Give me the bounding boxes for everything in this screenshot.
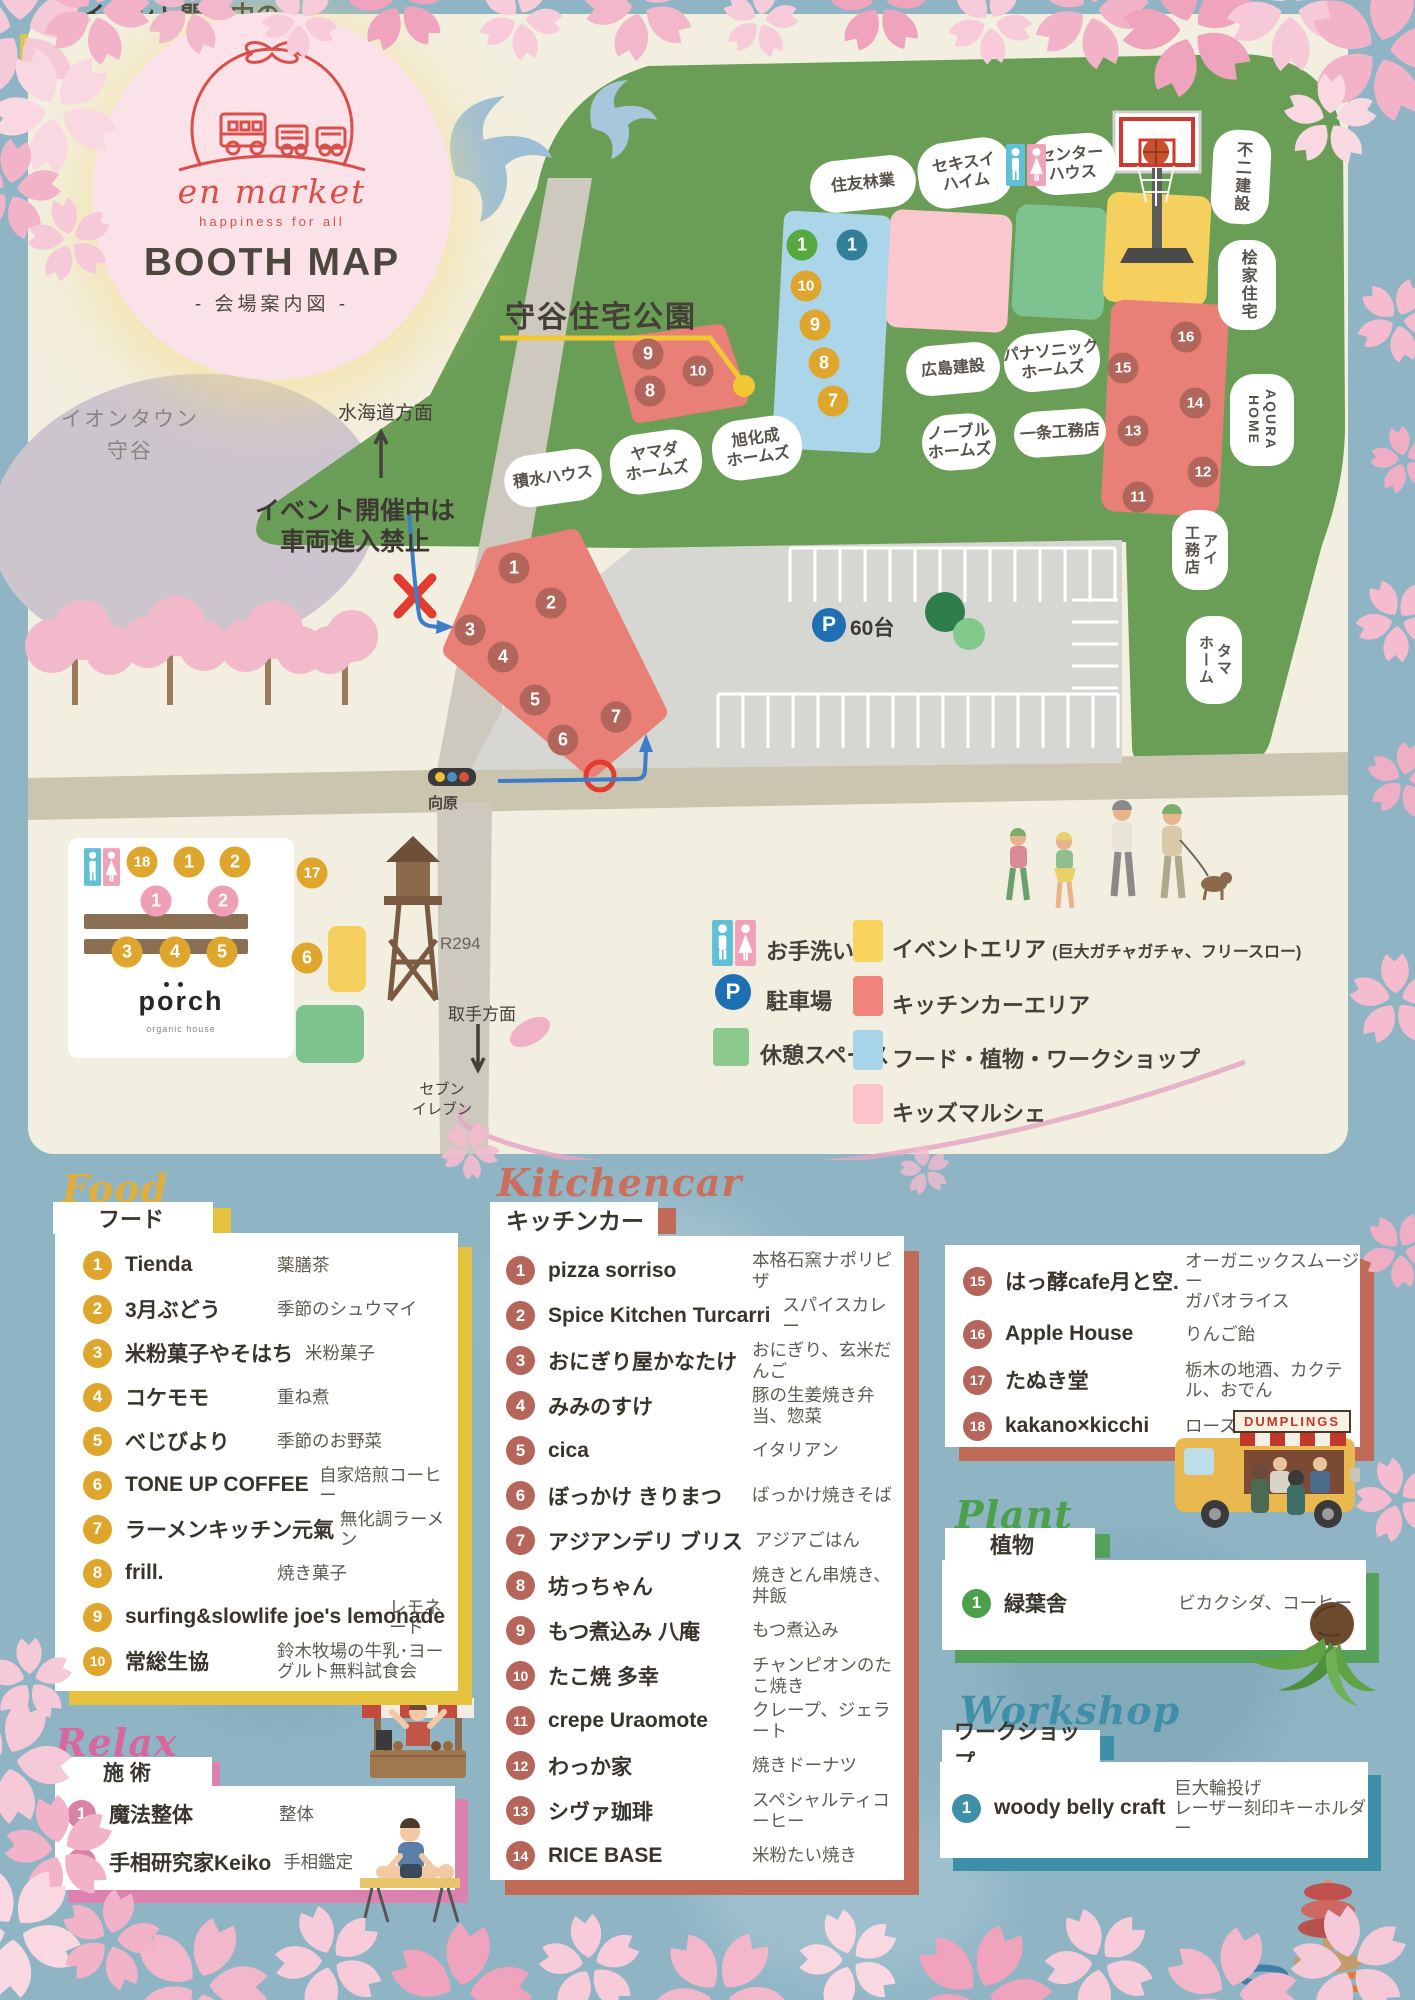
booth-number: 2 <box>506 1301 535 1330</box>
booth-description: 無化調ラーメン <box>340 1509 458 1549</box>
booth-row: 9 surfing&slowlife joe's lemonade レモネード <box>55 1595 458 1639</box>
map-booth-marker-red-5: 5 <box>520 685 551 716</box>
map-booth-marker-red-3: 3 <box>455 615 486 646</box>
booth-number: 1 <box>962 1589 991 1618</box>
booth-name: 常総生協 <box>125 1646 265 1676</box>
map-booth-marker-red-6: 6 <box>548 725 579 756</box>
map-booth-marker-red-15: 15 <box>1108 353 1139 384</box>
bubble-tama-home: タマ ホーム <box>1186 616 1242 704</box>
booth-number: 13 <box>506 1796 535 1825</box>
ring-toss-illustration <box>1225 1862 1370 1992</box>
booth-name: frill. <box>125 1561 265 1585</box>
booth-description: もつ煮込み <box>752 1620 839 1640</box>
booth-number: 1 <box>83 1251 112 1280</box>
map-booth-marker-yellow-1: 1 <box>174 847 205 878</box>
booth-name: わっか家 <box>548 1751 740 1781</box>
booth-name: たぬき堂 <box>1005 1365 1173 1395</box>
legend-event-note: (巨大ガチャガチャ、フリースロー) <box>1052 944 1301 961</box>
bubble-fuji-kensetsu: 不二建設 <box>1210 129 1273 226</box>
booth-number: 6 <box>83 1471 112 1500</box>
booth-description: おにぎり、玄米だんご <box>752 1340 904 1380</box>
booth-number: 10 <box>83 1647 112 1676</box>
map-booth-marker-yellow-5: 5 <box>207 937 238 968</box>
booth-number: 18 <box>963 1412 992 1441</box>
booth-name: 手相研究家Keiko <box>109 1847 271 1877</box>
booth-description: ばっかけ焼きそば <box>752 1485 892 1505</box>
booth-number: 1 <box>67 1800 96 1829</box>
map-booth-marker-teal-1: 1 <box>837 230 868 261</box>
map-booth-marker-red-7: 7 <box>601 702 632 733</box>
food-booth-list: 1 Tienda 薬膳茶 2 3月ぶどう 季節のシュウマイ 3 米粉菓子やそはち… <box>55 1233 458 1691</box>
booth-number: 12 <box>506 1751 535 1780</box>
kitchencar-script-heading: Kitchencar <box>497 1160 742 1205</box>
direction-north-label: 水海道方面 <box>338 398 433 425</box>
direction-south-label: 取手方面 <box>448 1000 516 1025</box>
booth-row: 6 ぼっかけ きりまつ ばっかけ焼きそば <box>490 1473 904 1518</box>
booth-number: 3 <box>506 1346 535 1375</box>
booth-number: 6 <box>506 1481 535 1510</box>
map-booth-marker-red-2: 2 <box>536 588 567 619</box>
porch-logo-sub: organic house <box>68 1024 294 1034</box>
parking-capacity: 60台 <box>850 612 894 642</box>
truck-sign: DUMPLINGS <box>1233 1410 1351 1433</box>
map-booth-marker-yellow-17: 17 <box>297 858 328 889</box>
booth-description: 整体 <box>279 1804 314 1824</box>
booth-number: 5 <box>83 1427 112 1456</box>
plant-section-title: 植物 <box>945 1528 1095 1560</box>
booth-number: 3 <box>83 1339 112 1368</box>
zone-event-small <box>328 926 366 992</box>
booth-name: Spice Kitchen Turcarri <box>548 1304 770 1328</box>
booth-description: 焼きドーナツ <box>752 1755 857 1775</box>
legend-event-swatch <box>853 920 883 962</box>
booth-description: 焼き菓子 <box>277 1563 347 1583</box>
bubble-aqura-home: AQURA HOME <box>1230 374 1294 466</box>
booth-description: アジアごはん <box>755 1530 860 1550</box>
booth-description: 季節のシュウマイ <box>277 1299 417 1319</box>
booth-name: ラーメンキッチン元氣 <box>125 1514 328 1544</box>
toilet-icon <box>712 920 756 966</box>
park-label-dot <box>733 375 755 397</box>
kitchencar-section-title: キッチンカー <box>490 1202 658 1236</box>
bubble-ai-koumuten: アイ 工務店 <box>1172 510 1228 590</box>
map-booth-marker-pink-1: 1 <box>141 886 172 917</box>
legend-kids-label: キッズマルシェ <box>892 1096 1046 1128</box>
relax-section-title: 施 術 <box>55 1757 212 1787</box>
booth-row: 17 たぬき堂 栃木の地酒、カクテル、おでん <box>945 1357 1360 1403</box>
booth-name: cica <box>548 1439 740 1463</box>
booth-name: おにぎり屋かなたけ <box>548 1346 740 1376</box>
page-title: BOOTH MAP <box>144 241 400 285</box>
map-booth-marker-red-4: 4 <box>488 642 519 673</box>
booth-row: 1 pizza sorriso 本格石窯ナポリピザ <box>490 1248 904 1293</box>
booth-name: Apple House <box>1005 1322 1173 1346</box>
booth-number: 1 <box>952 1794 981 1823</box>
booth-name: はっ酵cafe月と空. <box>1005 1266 1173 1296</box>
booth-name: kakano×kicchi <box>1005 1414 1173 1438</box>
booth-number: 5 <box>506 1436 535 1465</box>
booth-row: 7 アジアンデリ ブリス アジアごはん <box>490 1518 904 1563</box>
booth-name: Tienda <box>125 1253 265 1277</box>
booth-name: TONE UP COFFEE <box>125 1473 307 1497</box>
booth-number: 4 <box>506 1391 535 1420</box>
booth-row: 1 Tienda 薬膳茶 <box>55 1243 458 1287</box>
booth-row: 5 cica イタリアン <box>490 1428 904 1473</box>
legend-event-text: イベントエリア <box>892 937 1046 962</box>
booth-number: 17 <box>963 1366 992 1395</box>
booth-description: 手相鑑定 <box>283 1852 353 1872</box>
legend-kitchencar-label: キッチンカーエリア <box>892 988 1090 1020</box>
event-logo: en market happiness for all BOOTH MAP - … <box>92 12 452 380</box>
booth-row: 8 坊っちゃん 焼きとん串焼き、丼飯 <box>490 1563 904 1608</box>
booth-description: 焼きとん串焼き、丼飯 <box>752 1565 904 1605</box>
booth-row: 10 常総生協 鈴木牧場の牛乳･ヨーグルト無料試食会 <box>55 1639 458 1683</box>
booth-name: べじびより <box>125 1426 265 1456</box>
staghorn-fern-illustration <box>1240 1598 1380 1710</box>
legend-toilet-label: お手洗い <box>766 934 854 966</box>
porch-logo: porch <box>68 986 294 1017</box>
map-booth-marker-yellow-2: 2 <box>220 847 251 878</box>
booth-number: 7 <box>506 1526 535 1555</box>
booth-row: 1 woody belly craft 巨大輪投げ レーザー刻印キーホルダー <box>940 1768 1368 1848</box>
booth-number: 4 <box>83 1383 112 1412</box>
booth-description: 豚の生姜焼き弁当、惣菜 <box>752 1385 904 1425</box>
legend-parking-label: 駐車場 <box>766 984 832 1016</box>
bubble-hinokiya: 桧家住宅 <box>1218 240 1276 330</box>
people-illustration <box>1009 800 1232 908</box>
booth-row: 10 たこ焼 多幸 チャンピオンのたこ焼き <box>490 1653 904 1698</box>
booth-description: イタリアン <box>752 1440 839 1460</box>
route-label: R294 <box>440 934 481 954</box>
workshop-section-title: ワークショップ <box>942 1730 1100 1762</box>
booth-map-flyer: en market happiness for all BOOTH MAP - … <box>0 0 1415 2000</box>
legend-rest-swatch <box>713 1028 749 1066</box>
booth-number: 7 <box>83 1515 112 1544</box>
booth-number: 16 <box>963 1320 992 1349</box>
map-legend: お手洗い P 駐車場 休憩スペース イベントエリア (巨大ガチャガチャ、フリース… <box>700 912 1400 1147</box>
zone-kids-pink <box>885 209 1013 333</box>
booth-name: pizza sorriso <box>548 1259 740 1283</box>
map-booth-marker-red-1: 1 <box>499 553 530 584</box>
massage-illustration <box>348 1806 466 1928</box>
booth-number: 15 <box>963 1267 992 1296</box>
parking-icon: P <box>812 608 846 642</box>
booth-number: 2 <box>83 1295 112 1324</box>
map-booth-marker-yellow-4: 4 <box>160 937 191 968</box>
kitchencar-booth-list: 1 pizza sorriso 本格石窯ナポリピザ 2 Spice Kitche… <box>490 1236 904 1880</box>
booth-row: 6 TONE UP COFFEE 自家焙煎コーヒー <box>55 1463 458 1507</box>
aeon-town-label: イオンタウン 守谷 <box>50 404 210 467</box>
booth-name: woody belly craft <box>994 1796 1162 1820</box>
booth-row: 7 ラーメンキッチン元氣 無化調ラーメン <box>55 1507 458 1551</box>
map-booth-marker-red-11: 11 <box>1123 482 1154 513</box>
legend-kitchencar-swatch <box>853 976 883 1016</box>
booth-description: 巨大輪投げ レーザー刻印キーホルダー <box>1174 1778 1368 1838</box>
toilet-icon <box>1006 144 1046 186</box>
booth-row: 9 もつ煮込み 八庵 もつ煮込み <box>490 1608 904 1653</box>
booth-row: 2 3月ぶどう 季節のシュウマイ <box>55 1287 458 1331</box>
map-booth-marker-yellow-10: 10 <box>791 271 822 302</box>
legend-kids-swatch <box>853 1084 883 1124</box>
legend-event-label: イベントエリア (巨大ガチャガチャ、フリースロー) <box>892 932 1301 964</box>
map-booth-marker-red-14: 14 <box>1180 388 1211 419</box>
booth-number: 9 <box>506 1616 535 1645</box>
booth-row: 5 べじびより 季節のお野菜 <box>55 1419 458 1463</box>
booth-description: 鈴木牧場の牛乳･ヨーグルト無料試食会 <box>277 1641 458 1681</box>
booth-row: 8 frill. 焼き菓子 <box>55 1551 458 1595</box>
booth-description: 季節のお野菜 <box>277 1431 382 1451</box>
map-booth-marker-yellow-9: 9 <box>800 310 831 341</box>
booth-number: 8 <box>506 1571 535 1600</box>
booth-description: チャンピオンのたこ焼き <box>752 1655 904 1695</box>
booth-row: 4 コケモモ 重ね煮 <box>55 1375 458 1419</box>
traffic-light-icon <box>428 768 476 786</box>
booth-number: 11 <box>506 1706 535 1735</box>
booth-number: 8 <box>83 1559 112 1588</box>
booth-description: スペシャルティコーヒー <box>752 1790 904 1830</box>
booth-name: コケモモ <box>125 1382 265 1412</box>
seven-eleven-label: セブン イレブン <box>396 1080 488 1119</box>
booth-name: RICE BASE <box>548 1844 740 1868</box>
crossing-label: 向原 <box>428 792 458 813</box>
bubble-ichijo: 一条工務店 <box>1013 407 1108 459</box>
booth-row: 3 おにぎり屋かなたけ おにぎり、玄米だんご <box>490 1338 904 1383</box>
legend-parking-icon: P <box>715 974 751 1010</box>
park-name-label: 守谷住宅公園 <box>505 292 697 336</box>
booth-description: クレープ、ジェラート <box>752 1700 904 1740</box>
booth-description: 自家焙煎コーヒー <box>319 1465 458 1505</box>
booth-name: crepe Uraomote <box>548 1709 740 1733</box>
booth-description: りんご飴 <box>1185 1324 1255 1344</box>
booth-number: 10 <box>506 1661 535 1690</box>
booth-name: アジアンデリ ブリス <box>548 1526 743 1556</box>
booth-description: スパイスカレー <box>782 1295 904 1335</box>
booth-number: 14 <box>506 1841 535 1870</box>
booth-name: 坊っちゃん <box>548 1571 740 1601</box>
map-booth-marker-red-10: 10 <box>683 356 714 387</box>
map-booth-marker-red-9: 9 <box>633 339 664 370</box>
map-booth-marker-red-8: 8 <box>635 376 666 407</box>
booth-name: 魔法整体 <box>109 1799 267 1829</box>
booth-description: 米粉たい焼き <box>752 1845 857 1865</box>
food-section-title: フード <box>53 1202 213 1234</box>
booth-description: 本格石窯ナポリピザ <box>752 1250 904 1290</box>
booth-description: レモネード <box>389 1597 458 1637</box>
booth-row: 16 Apple House りんご飴 <box>945 1311 1360 1357</box>
booth-row: 13 シヴァ珈琲 スペシャルティコーヒー <box>490 1788 904 1833</box>
booth-name: 3月ぶどう <box>125 1294 265 1324</box>
booth-number: 1 <box>506 1256 535 1285</box>
market-stall-illustration <box>362 1682 474 1790</box>
booth-number: 9 <box>83 1603 112 1632</box>
booth-row: 4 みみのすけ 豚の生姜焼き弁当、惣菜 <box>490 1383 904 1428</box>
map-booth-marker-green-1: 1 <box>787 230 818 261</box>
booth-name: ぼっかけ きりまつ <box>548 1481 740 1511</box>
workshop-booth-list: 1 woody belly craft 巨大輪投げ レーザー刻印キーホルダー <box>940 1762 1368 1858</box>
booth-name: surfing&slowlife joe's lemonade <box>125 1605 377 1629</box>
booth-row: 2 Spice Kitchen Turcarri スパイスカレー <box>490 1293 904 1338</box>
booth-name: みみのすけ <box>548 1391 740 1421</box>
toilet-icon <box>84 848 120 886</box>
map-booth-marker-yellow-6: 6 <box>292 943 323 974</box>
booth-name: シヴァ珈琲 <box>548 1796 740 1826</box>
booth-description: オーガニックスムージー ガパオライス <box>1185 1251 1360 1311</box>
map-booth-marker-pink-2: 2 <box>208 886 239 917</box>
booth-description: 栃木の地酒、カクテル、おでん <box>1185 1360 1360 1400</box>
map-booth-marker-red-12: 12 <box>1188 457 1219 488</box>
map-booth-marker-yellow-8: 8 <box>809 348 840 379</box>
logo-truck-art <box>177 38 367 178</box>
booth-row: 12 わっか家 焼きドーナツ <box>490 1743 904 1788</box>
booth-name: 緑葉舎 <box>1004 1588 1166 1618</box>
booth-description: 米粉菓子 <box>305 1343 375 1363</box>
booth-number: 2 <box>67 1848 96 1877</box>
brand-tagline: happiness for all <box>199 214 345 229</box>
booth-row: 15 はっ酵cafe月と空. オーガニックスムージー ガパオライス <box>945 1251 1360 1311</box>
page-subtitle: - 会場案内図 - <box>195 289 349 316</box>
map-booth-marker-red-13: 13 <box>1118 416 1149 447</box>
no-entry-notice: イベント開催中は 車両進入禁止 <box>225 496 485 559</box>
wooden-tower <box>384 836 442 1000</box>
zone-rest-small <box>296 1005 364 1063</box>
booth-row: 3 米粉菓子やそはち 米粉菓子 <box>55 1331 458 1375</box>
booth-row: 11 crepe Uraomote クレープ、ジェラート <box>490 1698 904 1743</box>
tree <box>953 618 985 650</box>
booth-name: 米粉菓子やそはち <box>125 1338 293 1368</box>
legend-food-label: フード・植物・ワークショップ <box>892 1042 1200 1074</box>
map-booth-marker-yellow-3: 3 <box>112 937 143 968</box>
booth-name: たこ焼 多幸 <box>548 1661 740 1691</box>
legend-food-swatch <box>853 1030 883 1070</box>
booth-description: 重ね煮 <box>277 1387 330 1407</box>
map-booth-marker-yellow-7: 7 <box>818 386 849 417</box>
zone-rest-green <box>1011 204 1109 321</box>
booth-description: 薬膳茶 <box>277 1255 330 1275</box>
brand-name: en market <box>178 172 367 211</box>
map-booth-marker-yellow-18: 18 <box>127 847 158 878</box>
map-booth-marker-red-16: 16 <box>1171 322 1202 353</box>
booth-row: 14 RICE BASE 米粉たい焼き <box>490 1833 904 1878</box>
booth-name: もつ煮込み 八庵 <box>548 1616 740 1646</box>
